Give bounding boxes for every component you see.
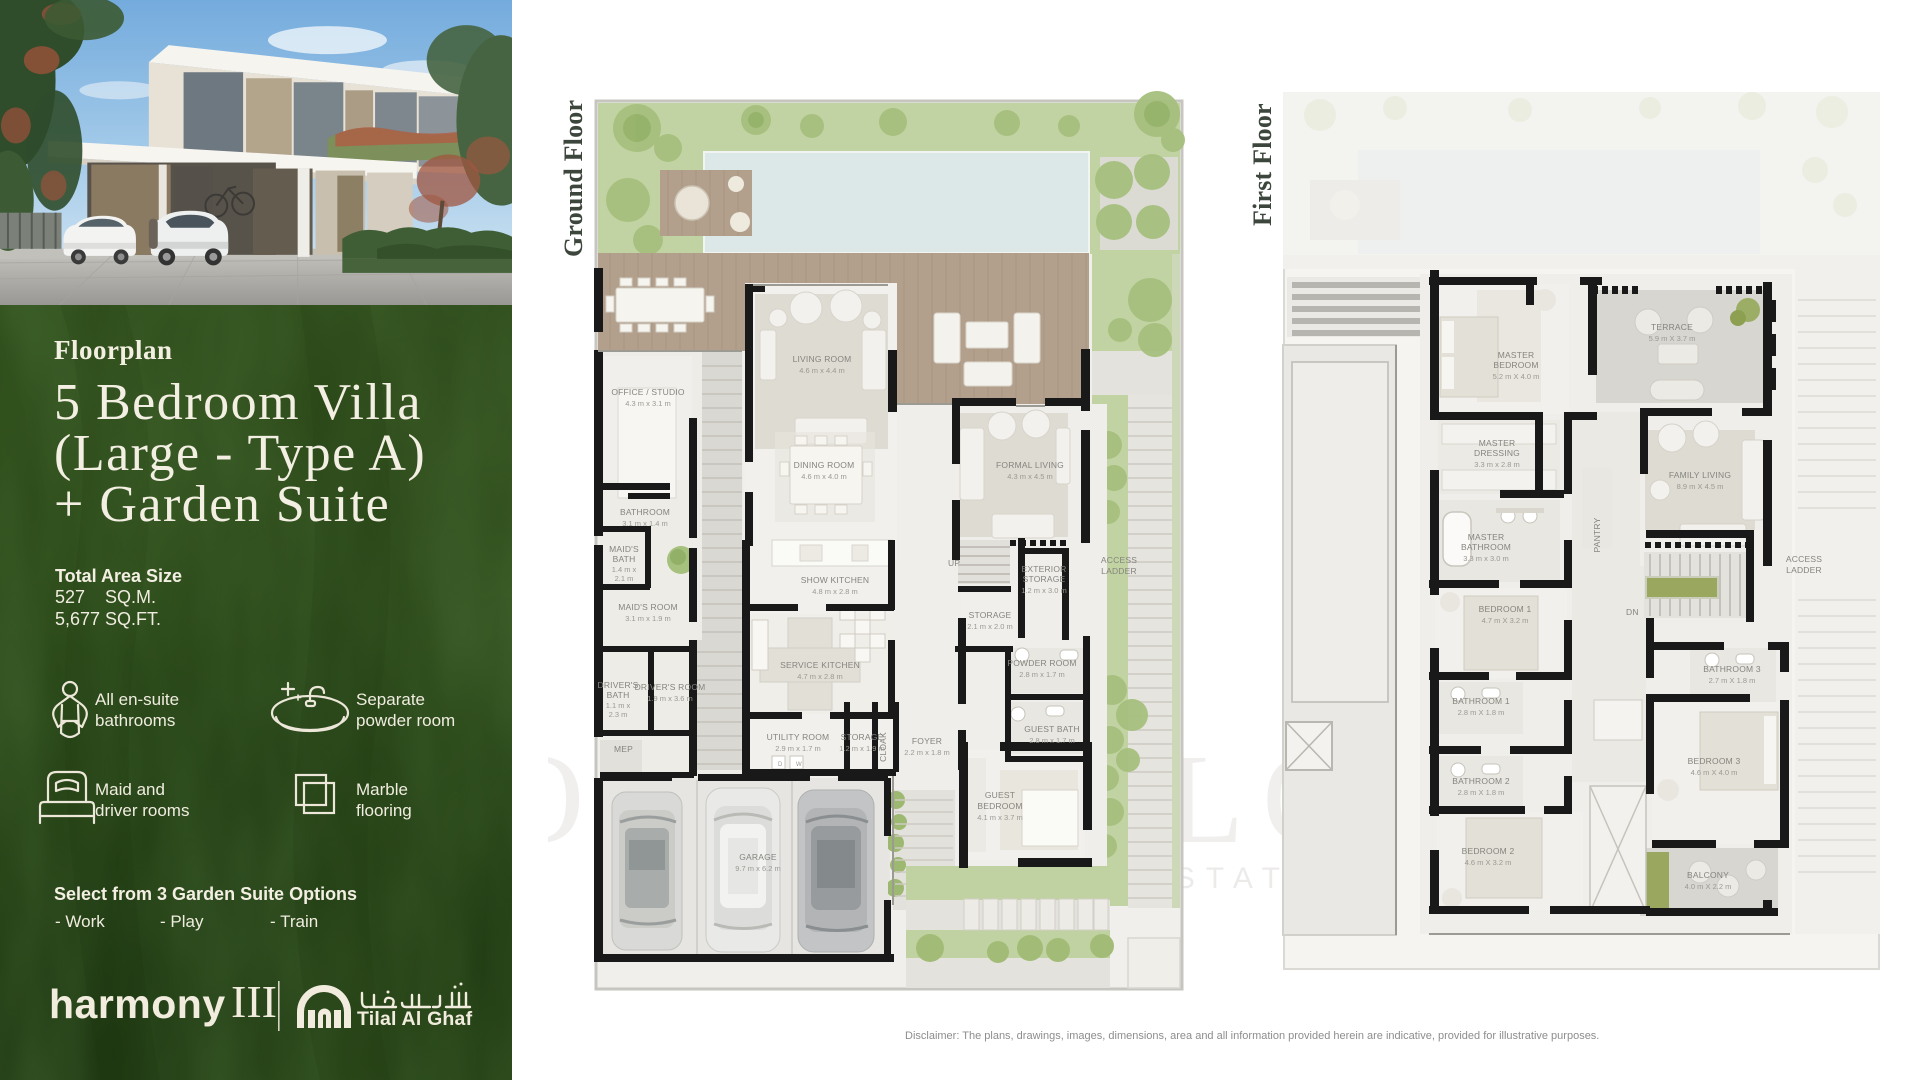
svg-text:4.1 m x 3.7 m: 4.1 m x 3.7 m — [977, 813, 1022, 822]
svg-text:5.9 m X 3.7 m: 5.9 m X 3.7 m — [1649, 334, 1696, 343]
svg-text:4.7 m X 3.2 m: 4.7 m X 3.2 m — [1482, 616, 1529, 625]
svg-text:BATHROOM: BATHROOM — [620, 507, 670, 517]
svg-text:EXTERIOR: EXTERIOR — [1021, 564, 1066, 574]
svg-text:BATHROOM 3: BATHROOM 3 — [1703, 664, 1761, 674]
svg-text:BATH: BATH — [613, 554, 636, 564]
svg-text:LADDER: LADDER — [1786, 565, 1822, 575]
svg-text:UP: UP — [948, 558, 960, 568]
svg-text:MASTER: MASTER — [1479, 438, 1516, 448]
svg-text:ACCESS: ACCESS — [1786, 554, 1822, 564]
svg-text:BEDROOM 3: BEDROOM 3 — [1688, 756, 1741, 766]
svg-text:2.9 m x 1.7 m: 2.9 m x 1.7 m — [775, 744, 820, 753]
svg-text:8.9 m X 4.5 m: 8.9 m X 4.5 m — [1677, 482, 1724, 491]
svg-text:PANTRY: PANTRY — [1592, 517, 1602, 552]
svg-text:2.8 m x 1.7 m: 2.8 m x 1.7 m — [1029, 736, 1074, 745]
svg-text:3.3 m x 3.0 m: 3.3 m x 3.0 m — [1463, 554, 1508, 563]
svg-text:GARAGE: GARAGE — [739, 852, 777, 862]
svg-text:UTILITY ROOM: UTILITY ROOM — [767, 732, 830, 742]
svg-text:MASTER: MASTER — [1498, 350, 1535, 360]
svg-text:DRESSING: DRESSING — [1474, 448, 1520, 458]
svg-text:LIVING ROOM: LIVING ROOM — [793, 354, 852, 364]
svg-text:2.8 m X 1.8 m: 2.8 m X 1.8 m — [1458, 788, 1505, 797]
svg-text:BEDROOM: BEDROOM — [977, 801, 1022, 811]
svg-text:MASTER: MASTER — [1468, 532, 1505, 542]
svg-text:CLOAK: CLOAK — [878, 732, 888, 762]
svg-text:MAID'S ROOM: MAID'S ROOM — [618, 602, 678, 612]
svg-text:SHOW KITCHEN: SHOW KITCHEN — [801, 575, 870, 585]
svg-text:LADDER: LADDER — [1101, 566, 1137, 576]
svg-text:4.6 m x 4.0 m: 4.6 m x 4.0 m — [801, 472, 846, 481]
svg-text:First Floor: First Floor — [1248, 103, 1277, 226]
svg-text:W: W — [796, 762, 802, 768]
svg-text:4.0 m X 2.2 m: 4.0 m X 2.2 m — [1685, 882, 1732, 891]
svg-text:DRIVER'S: DRIVER'S — [597, 680, 638, 690]
svg-text:4.7 m x 2.8 m: 4.7 m x 2.8 m — [797, 672, 842, 681]
svg-text:2.1 m: 2.1 m — [615, 574, 634, 583]
svg-text:9.7 m x 6.2 m: 9.7 m x 6.2 m — [735, 864, 780, 873]
svg-text:BEDROOM 1: BEDROOM 1 — [1479, 604, 1532, 614]
svg-text:MEP: MEP — [614, 744, 633, 754]
svg-text:4.6 m X 3.2 m: 4.6 m X 3.2 m — [1465, 858, 1512, 867]
svg-text:3.3 m x 2.8 m: 3.3 m x 2.8 m — [1474, 460, 1519, 469]
svg-text:STORAGE: STORAGE — [969, 610, 1012, 620]
svg-text:BATHROOM: BATHROOM — [1461, 542, 1511, 552]
svg-text:1.9 m x 3.6 m: 1.9 m x 3.6 m — [647, 694, 692, 703]
svg-text:DRIVER'S ROOM: DRIVER'S ROOM — [635, 682, 706, 692]
svg-text:Ground Floor: Ground Floor — [559, 100, 588, 257]
svg-text:DINING ROOM: DINING ROOM — [794, 460, 855, 470]
svg-text:SERVICE KITCHEN: SERVICE KITCHEN — [780, 660, 860, 670]
svg-text:1.4 m x: 1.4 m x — [612, 565, 637, 574]
svg-text:2.7 m X 1.8 m: 2.7 m X 1.8 m — [1709, 676, 1756, 685]
svg-text:FORMAL LIVING: FORMAL LIVING — [996, 460, 1064, 470]
svg-text:BATHROOM 2: BATHROOM 2 — [1452, 776, 1510, 786]
svg-text:FAMILY LIVING: FAMILY LIVING — [1669, 470, 1731, 480]
svg-text:DN: DN — [1626, 607, 1639, 617]
svg-text:4.3 m x 4.5 m: 4.3 m x 4.5 m — [1007, 472, 1052, 481]
svg-text:4.6 m x 4.4 m: 4.6 m x 4.4 m — [799, 366, 844, 375]
svg-text:FOYER: FOYER — [912, 736, 942, 746]
svg-text:2.3 m: 2.3 m — [609, 710, 628, 719]
svg-text:BATHROOM 1: BATHROOM 1 — [1452, 696, 1510, 706]
svg-text:OFFICE / STUDIO: OFFICE / STUDIO — [611, 387, 685, 397]
svg-text:STORAGE: STORAGE — [1023, 574, 1066, 584]
svg-text:4.8 m x 2.8 m: 4.8 m x 2.8 m — [812, 587, 857, 596]
svg-text:BEDROOM 2: BEDROOM 2 — [1462, 846, 1515, 856]
svg-text:2.8 m x 1.7 m: 2.8 m x 1.7 m — [1019, 670, 1064, 679]
svg-text:4.3 m x 3.1 m: 4.3 m x 3.1 m — [625, 399, 670, 408]
svg-text:2.2 m x 1.8 m: 2.2 m x 1.8 m — [904, 748, 949, 757]
svg-text:POWDER ROOM: POWDER ROOM — [1007, 658, 1076, 668]
svg-text:D: D — [778, 762, 783, 768]
svg-text:TERRACE: TERRACE — [1651, 322, 1693, 332]
svg-text:4.6 m X 4.0 m: 4.6 m X 4.0 m — [1691, 768, 1738, 777]
svg-text:BALCONY: BALCONY — [1687, 870, 1729, 880]
svg-text:BATH: BATH — [607, 690, 630, 700]
svg-text:GUEST: GUEST — [985, 790, 1015, 800]
svg-text:ACCESS: ACCESS — [1101, 555, 1137, 565]
svg-text:3.1 m x 1.9 m: 3.1 m x 1.9 m — [625, 614, 670, 623]
svg-text:MAID'S: MAID'S — [609, 544, 639, 554]
svg-text:1.1 m x: 1.1 m x — [606, 701, 631, 710]
svg-text:5.2 m X 4.0 m: 5.2 m X 4.0 m — [1493, 372, 1540, 381]
svg-text:BEDROOM: BEDROOM — [1493, 360, 1538, 370]
svg-text:2.1 m x 2.0 m: 2.1 m x 2.0 m — [967, 622, 1012, 631]
svg-text:GUEST BATH: GUEST BATH — [1024, 724, 1080, 734]
svg-text:2.8 m X 1.8 m: 2.8 m X 1.8 m — [1458, 708, 1505, 717]
svg-text:1.2 m x 3.0 m: 1.2 m x 3.0 m — [1021, 586, 1066, 595]
svg-text:3.1 m x 1.4 m: 3.1 m x 1.4 m — [622, 519, 667, 528]
